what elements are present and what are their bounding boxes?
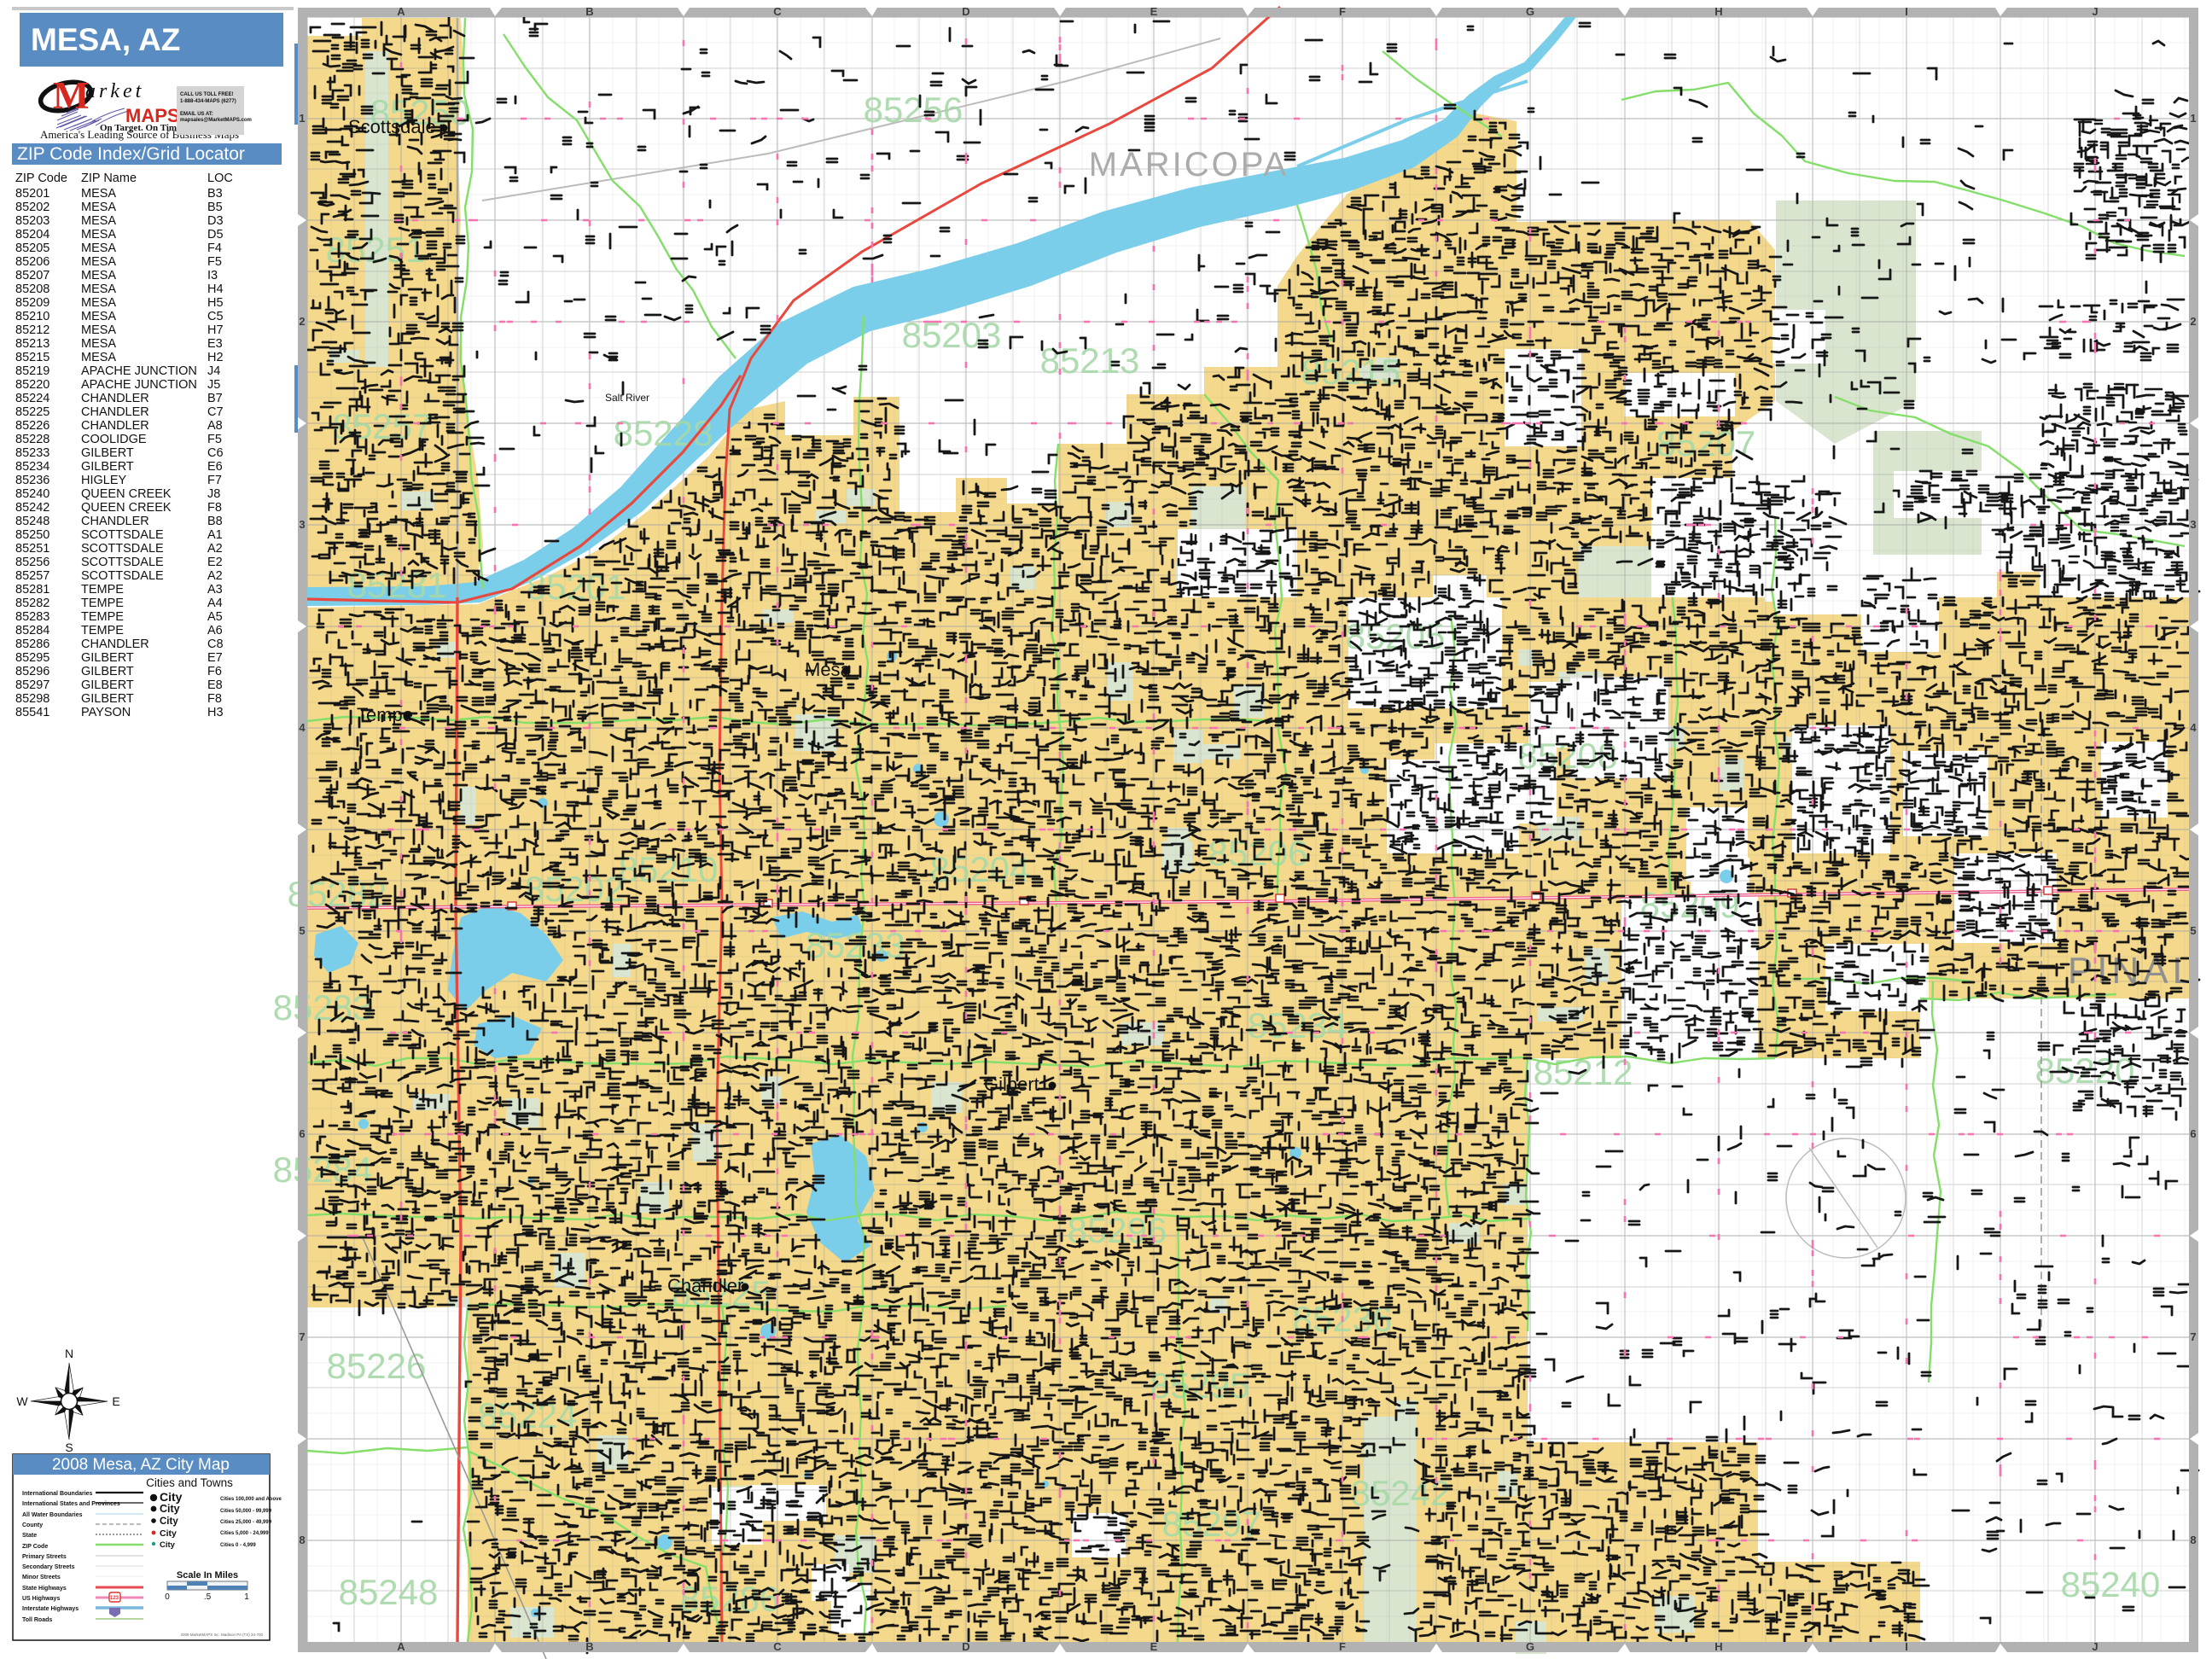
svg-text:Gilbert: Gilbert xyxy=(984,1074,1039,1095)
svg-text:US Highways: US Highways xyxy=(22,1596,60,1602)
svg-text:W: W xyxy=(16,1394,28,1408)
svg-text:85256: 85256 xyxy=(864,90,963,130)
svg-text:H: H xyxy=(1714,5,1722,18)
svg-text:85248: 85248 xyxy=(339,1572,439,1612)
svg-text:.5: .5 xyxy=(204,1592,212,1602)
svg-text:C: C xyxy=(773,1640,782,1653)
svg-text:Cities and Towns: Cities and Towns xyxy=(146,1476,233,1489)
svg-text:F: F xyxy=(1339,5,1346,18)
svg-text:County: County xyxy=(22,1522,43,1528)
svg-text:1: 1 xyxy=(2190,112,2196,125)
svg-text:Toll Roads: Toll Roads xyxy=(22,1617,52,1623)
svg-text:B: B xyxy=(585,5,593,18)
svg-text:4: 4 xyxy=(2190,721,2197,734)
svg-text:International States and Provi: International States and Provinces xyxy=(22,1501,120,1507)
svg-text:J: J xyxy=(2092,5,2098,18)
svg-text:1: 1 xyxy=(299,112,305,125)
svg-text:City: City xyxy=(160,1516,178,1527)
svg-text:4: 4 xyxy=(299,721,306,734)
svg-text:M: M xyxy=(53,74,89,117)
svg-text:G: G xyxy=(1526,5,1534,18)
svg-text:0: 0 xyxy=(165,1592,170,1602)
svg-text:85203: 85203 xyxy=(902,315,1002,355)
svg-text:International Boundaries: International Boundaries xyxy=(22,1491,93,1497)
svg-text:N: N xyxy=(65,1347,73,1360)
svg-text:All Water Boundaries: All Water Boundaries xyxy=(22,1512,83,1518)
svg-text:D: D xyxy=(962,5,969,18)
svg-text:Cities 100,000 and Above: Cities 100,000 and Above xyxy=(220,1497,282,1502)
svg-text:S: S xyxy=(65,1441,73,1454)
svg-text:C: C xyxy=(773,5,782,18)
svg-text:E: E xyxy=(112,1394,119,1408)
svg-text:2: 2 xyxy=(299,315,305,328)
svg-text:Scottsdale: Scottsdale xyxy=(348,116,436,137)
svg-text:A: A xyxy=(397,1640,405,1653)
svg-text:City: City xyxy=(160,1540,176,1550)
svg-text:85295: 85295 xyxy=(1150,1365,1250,1406)
svg-text:5: 5 xyxy=(299,924,305,937)
svg-text:2: 2 xyxy=(2190,315,2196,328)
svg-text:85240: 85240 xyxy=(2061,1564,2161,1604)
svg-text:H: H xyxy=(1714,1640,1722,1653)
svg-text:B: B xyxy=(585,1640,593,1653)
svg-text:Cities 25,000 - 49,999: Cities 25,000 - 49,999 xyxy=(220,1520,272,1525)
svg-text:8: 8 xyxy=(2190,1534,2196,1546)
svg-text:D: D xyxy=(962,1640,969,1653)
svg-text:7: 7 xyxy=(299,1330,305,1343)
svg-text:City: City xyxy=(160,1503,180,1515)
svg-text:I: I xyxy=(1905,1640,1908,1653)
svg-text:5: 5 xyxy=(2190,924,2196,937)
svg-text:Cities 0 - 4,999: Cities 0 - 4,999 xyxy=(220,1543,256,1548)
svg-text:E: E xyxy=(1150,5,1158,18)
svg-text:1: 1 xyxy=(244,1592,249,1602)
svg-text:J: J xyxy=(2092,1640,2098,1653)
svg-text:Interstate Highways: Interstate Highways xyxy=(22,1606,79,1612)
svg-text:ZIP Code: ZIP Code xyxy=(22,1544,48,1550)
svg-text:Chandler: Chandler xyxy=(667,1275,743,1296)
svg-text:State Highways: State Highways xyxy=(22,1586,67,1592)
svg-text:85226: 85226 xyxy=(327,1346,427,1386)
svg-text:Scale In Miles: Scale In Miles xyxy=(177,1570,238,1580)
svg-text:City: City xyxy=(160,1528,177,1539)
svg-text:123: 123 xyxy=(110,1596,119,1601)
svg-text:Cities 50,000 - 99,999: Cities 50,000 - 99,999 xyxy=(220,1509,272,1514)
svg-text:Secondary Streets: Secondary Streets xyxy=(22,1564,75,1570)
svg-text:85234: 85234 xyxy=(1248,1005,1348,1045)
svg-text:E: E xyxy=(1150,1640,1158,1653)
svg-text:F: F xyxy=(1339,1640,1346,1653)
svg-text:6: 6 xyxy=(299,1127,305,1140)
svg-text:A: A xyxy=(397,5,405,18)
svg-text:arket: arket xyxy=(85,80,144,102)
svg-text:G: G xyxy=(1526,1640,1534,1653)
svg-text:MARICOPA: MARICOPA xyxy=(1089,146,1289,183)
svg-text:Salt River: Salt River xyxy=(605,392,649,404)
svg-text:Cities 5,000 - 24,999: Cities 5,000 - 24,999 xyxy=(220,1531,269,1536)
svg-text:7: 7 xyxy=(2190,1330,2196,1343)
svg-text:City: City xyxy=(160,1490,183,1504)
svg-text:2008 MarketMAPS Inc. Madison P: 2008 MarketMAPS Inc. Madison PA (TX) 34-… xyxy=(181,1633,264,1637)
svg-text:85213: 85213 xyxy=(1040,341,1140,381)
svg-text:8: 8 xyxy=(299,1534,305,1546)
svg-text:3: 3 xyxy=(2190,518,2196,531)
svg-text:3: 3 xyxy=(299,518,305,531)
svg-text:6: 6 xyxy=(2190,1127,2196,1140)
svg-text:I: I xyxy=(1905,5,1908,18)
svg-text:State: State xyxy=(22,1533,37,1539)
svg-text:2008 Mesa, AZ City Map: 2008 Mesa, AZ City Map xyxy=(52,1456,230,1474)
svg-text:Minor Streets: Minor Streets xyxy=(22,1575,61,1580)
svg-text:Primary Streets: Primary Streets xyxy=(22,1554,67,1560)
